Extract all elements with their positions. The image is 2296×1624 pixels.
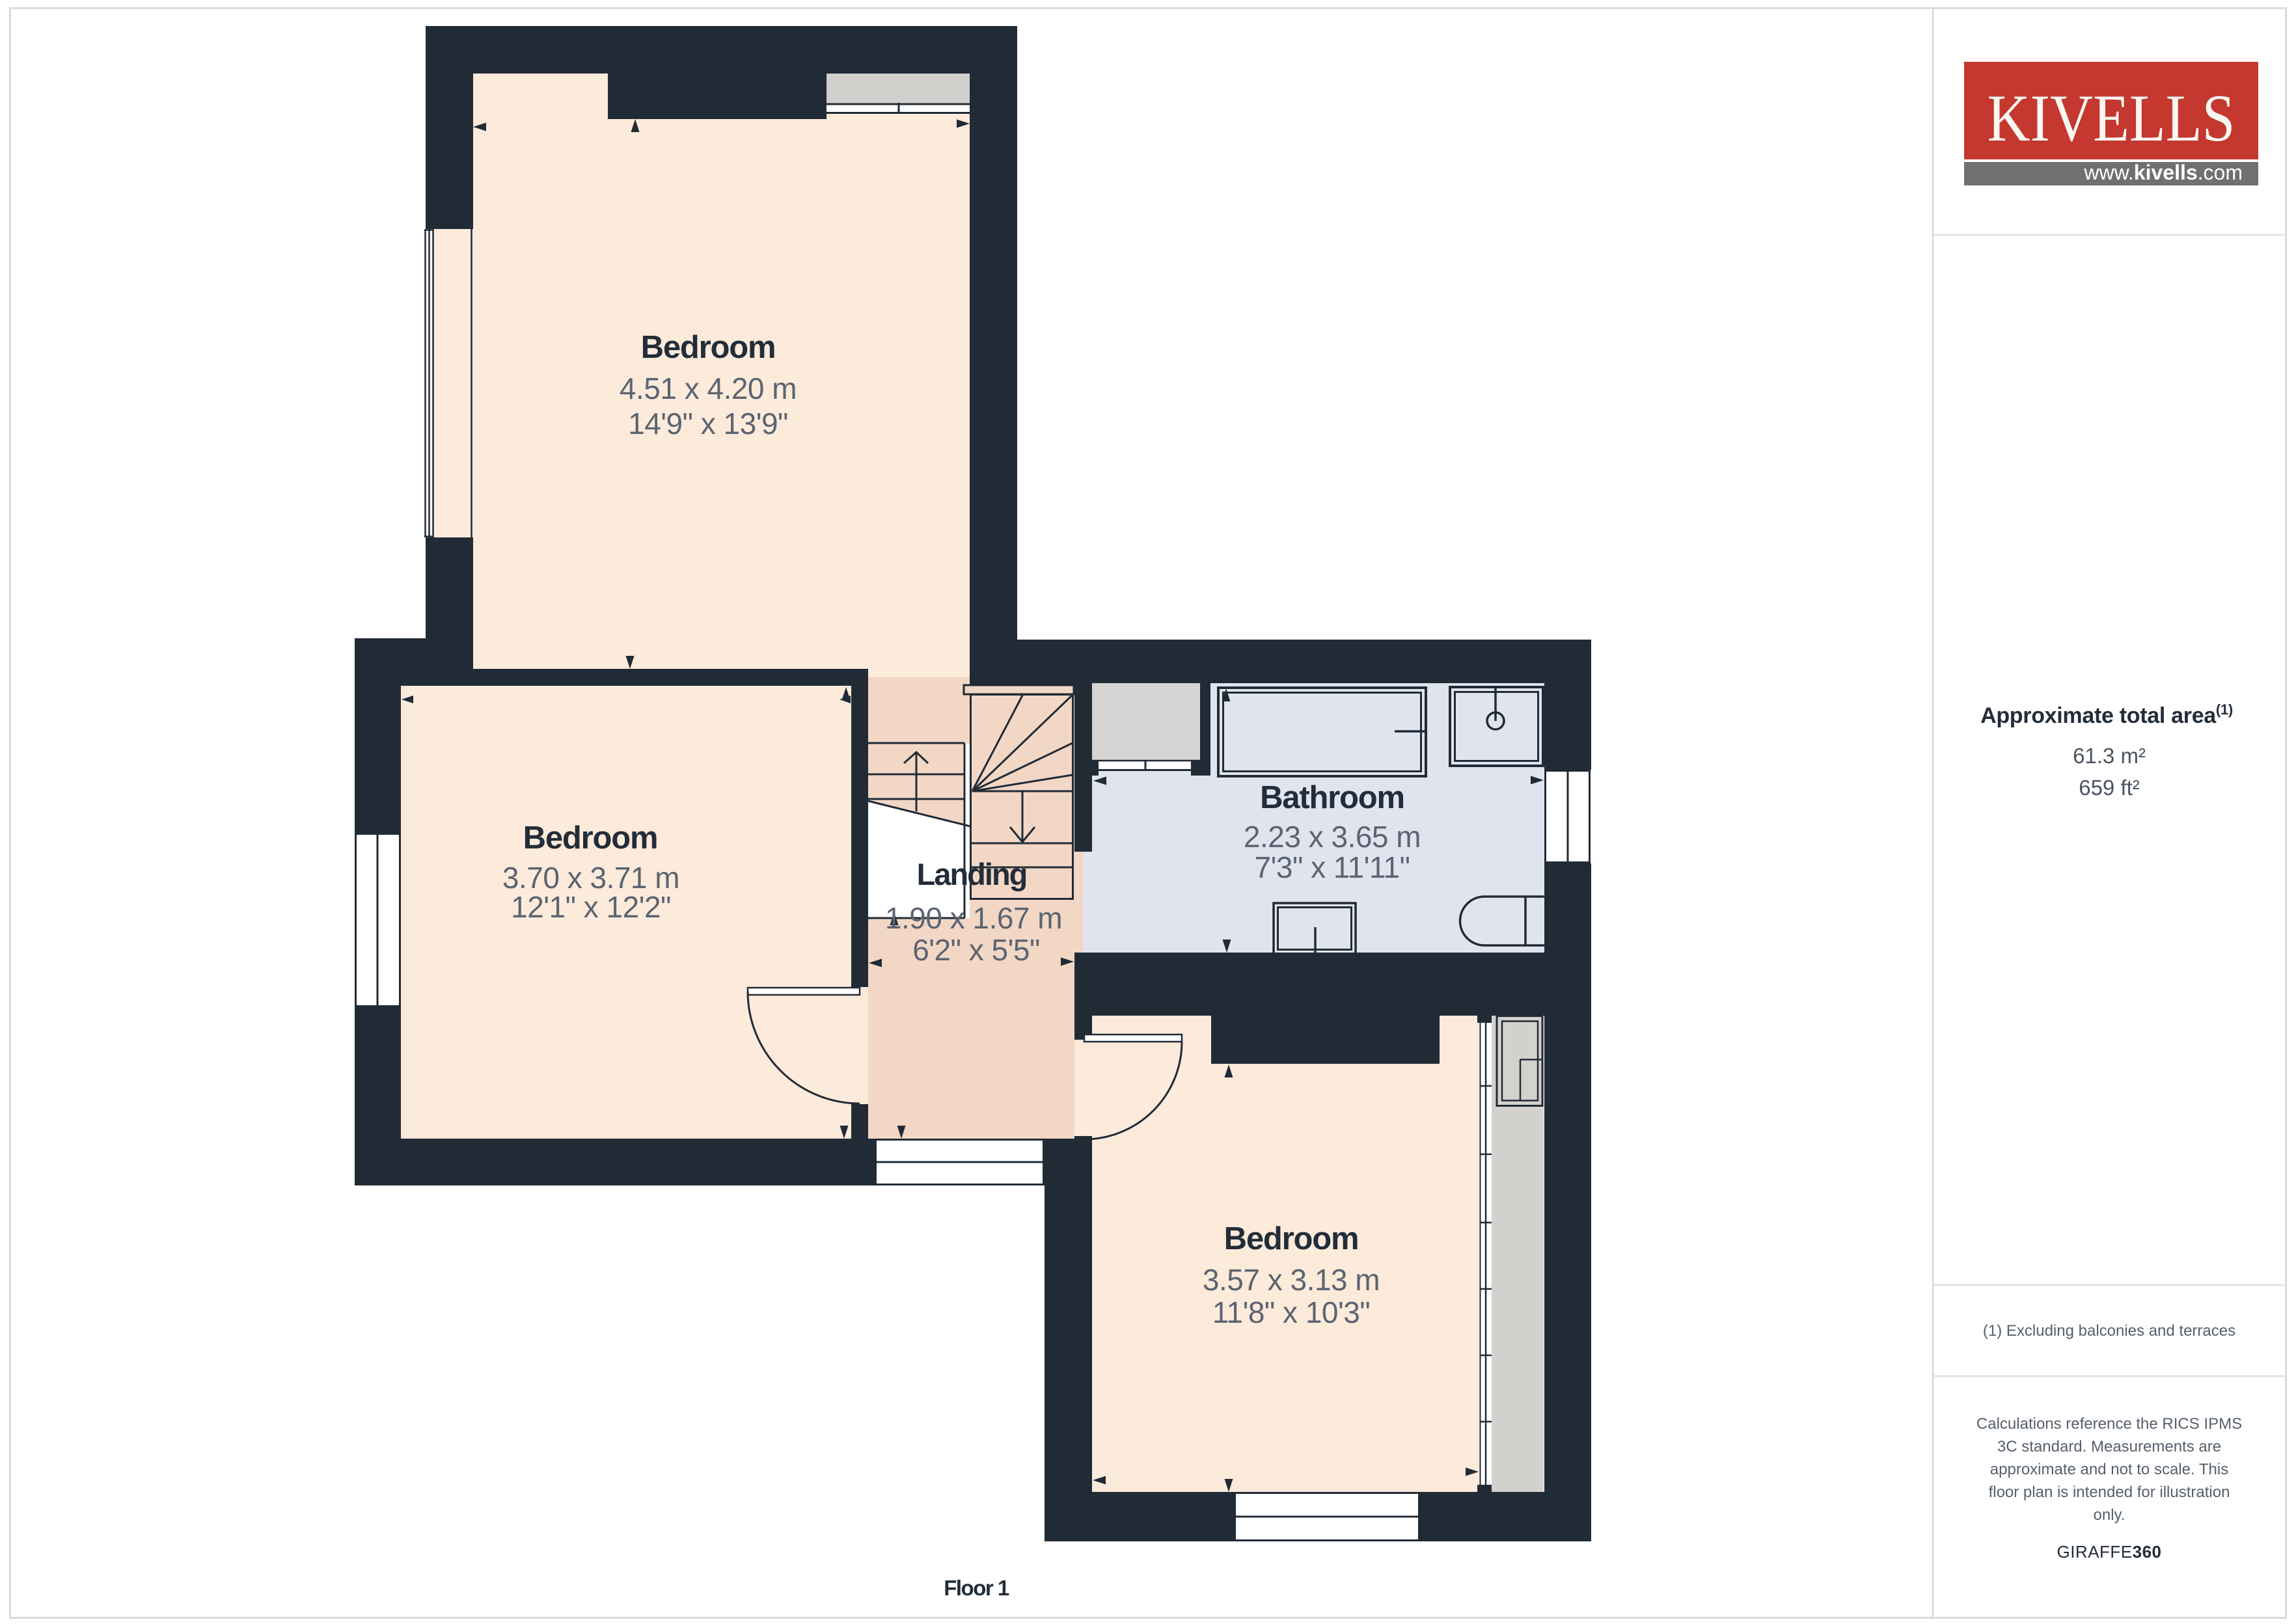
svg-text:14'9" x 13'9": 14'9" x 13'9" bbox=[628, 407, 788, 440]
svg-text:2.23 x 3.65 m: 2.23 x 3.65 m bbox=[1244, 820, 1421, 854]
svg-text:61.3 m²: 61.3 m² bbox=[2073, 744, 2146, 768]
svg-text:Approximate total area(1): Approximate total area(1) bbox=[1980, 701, 2233, 728]
svg-text:www.kivells.com: www.kivells.com bbox=[2083, 161, 2243, 184]
svg-text:GIRAFFE360: GIRAFFE360 bbox=[2057, 1542, 2161, 1562]
svg-text:4.51 x 4.20 m: 4.51 x 4.20 m bbox=[620, 372, 797, 405]
svg-text:Calculations reference the RIC: Calculations reference the RICS IPMS bbox=[1976, 1415, 2242, 1433]
svg-text:Bedroom: Bedroom bbox=[1224, 1221, 1359, 1256]
svg-text:approximate and not to scale.: approximate and not to scale. This bbox=[1990, 1461, 2228, 1478]
svg-text:12'1" x 12'2": 12'1" x 12'2" bbox=[511, 890, 671, 924]
svg-text:6'2" x 5'5": 6'2" x 5'5" bbox=[912, 933, 1040, 967]
svg-text:3.57 x 3.13 m: 3.57 x 3.13 m bbox=[1203, 1263, 1380, 1297]
svg-text:7'3" x 11'11": 7'3" x 11'11" bbox=[1255, 850, 1410, 884]
svg-text:Landing: Landing bbox=[917, 857, 1027, 891]
svg-text:only.: only. bbox=[2094, 1506, 2125, 1524]
svg-text:floor plan is intended for ill: floor plan is intended for illustration bbox=[1989, 1483, 2230, 1501]
svg-text:1.90 x 1.67 m: 1.90 x 1.67 m bbox=[885, 901, 1062, 935]
svg-text:11'8" x 10'3": 11'8" x 10'3" bbox=[1212, 1295, 1370, 1329]
svg-text:Bathroom: Bathroom bbox=[1260, 780, 1404, 815]
svg-text:3C standard. Measurements are: 3C standard. Measurements are bbox=[1997, 1438, 2221, 1455]
svg-text:(1) Excluding balconies and te: (1) Excluding balconies and terraces bbox=[1983, 1322, 2235, 1340]
svg-text:659 ft²: 659 ft² bbox=[2079, 776, 2140, 800]
svg-text:KIVELLS: KIVELLS bbox=[1988, 81, 2235, 156]
svg-text:Bedroom: Bedroom bbox=[641, 330, 776, 365]
svg-text:Floor 1: Floor 1 bbox=[944, 1576, 1009, 1600]
svg-text:Bedroom: Bedroom bbox=[523, 820, 658, 856]
